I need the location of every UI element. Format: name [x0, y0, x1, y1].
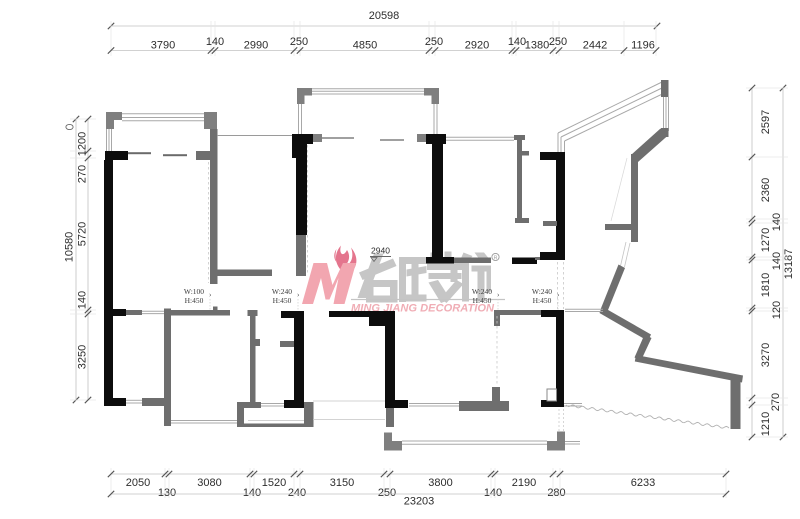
svg-text:2190: 2190 [512, 477, 536, 489]
svg-text:H:450: H:450 [273, 296, 292, 305]
svg-text:3800: 3800 [428, 477, 452, 489]
svg-text:6233: 6233 [631, 477, 655, 489]
svg-text:›: › [497, 291, 499, 299]
svg-text:5720: 5720 [77, 222, 89, 246]
svg-text:240: 240 [288, 487, 306, 499]
svg-text:140: 140 [243, 487, 261, 499]
svg-text:270: 270 [77, 165, 89, 183]
svg-text:2597: 2597 [760, 110, 772, 134]
svg-text:2940: 2940 [371, 246, 390, 256]
svg-text:›: › [557, 291, 559, 299]
svg-text:1520: 1520 [262, 477, 286, 489]
svg-text:280: 280 [547, 487, 565, 499]
svg-text:140: 140 [484, 487, 502, 499]
svg-text:›: › [209, 291, 211, 299]
svg-text:H:450: H:450 [185, 296, 204, 305]
svg-text:250: 250 [290, 36, 308, 48]
svg-text:2920: 2920 [465, 40, 489, 52]
svg-text:1200: 1200 [77, 132, 89, 156]
svg-text:13187: 13187 [783, 249, 795, 280]
svg-text:140: 140 [771, 213, 783, 231]
svg-text:140: 140 [771, 252, 783, 270]
svg-text:250: 250 [378, 487, 396, 499]
svg-text:1210: 1210 [760, 412, 772, 436]
svg-text:3250: 3250 [77, 345, 89, 369]
svg-text:2442: 2442 [583, 40, 607, 52]
svg-text:W:240: W:240 [472, 287, 492, 296]
svg-text:140: 140 [508, 36, 526, 48]
svg-text:1270: 1270 [760, 228, 772, 252]
svg-text:140: 140 [77, 291, 89, 309]
svg-text:W:240: W:240 [272, 287, 292, 296]
svg-text:H:450: H:450 [533, 296, 552, 305]
svg-text:1196: 1196 [631, 40, 655, 52]
svg-text:2990: 2990 [244, 40, 268, 52]
svg-text:120: 120 [771, 301, 783, 319]
svg-text:1380: 1380 [525, 40, 549, 52]
svg-text:3270: 3270 [760, 343, 772, 367]
svg-text:2360: 2360 [760, 178, 772, 202]
svg-text:3150: 3150 [330, 477, 354, 489]
svg-text:H:450: H:450 [473, 296, 492, 305]
svg-text:250: 250 [549, 36, 567, 48]
svg-text:140: 140 [206, 36, 224, 48]
svg-text:3790: 3790 [151, 40, 175, 52]
svg-text:270: 270 [770, 393, 782, 411]
svg-text:2050: 2050 [126, 477, 150, 489]
svg-text:4850: 4850 [353, 40, 377, 52]
svg-text:3080: 3080 [197, 477, 221, 489]
svg-text:130: 130 [158, 487, 176, 499]
svg-text:›: › [297, 291, 299, 299]
svg-text:23203: 23203 [404, 496, 435, 508]
svg-text:250: 250 [425, 36, 443, 48]
svg-text:20598: 20598 [369, 10, 400, 22]
svg-text:10580: 10580 [64, 232, 76, 263]
svg-text:R: R [494, 256, 498, 262]
svg-text:1810: 1810 [760, 273, 772, 297]
svg-text:W:100: W:100 [184, 287, 204, 296]
svg-text:W:240: W:240 [532, 287, 552, 296]
